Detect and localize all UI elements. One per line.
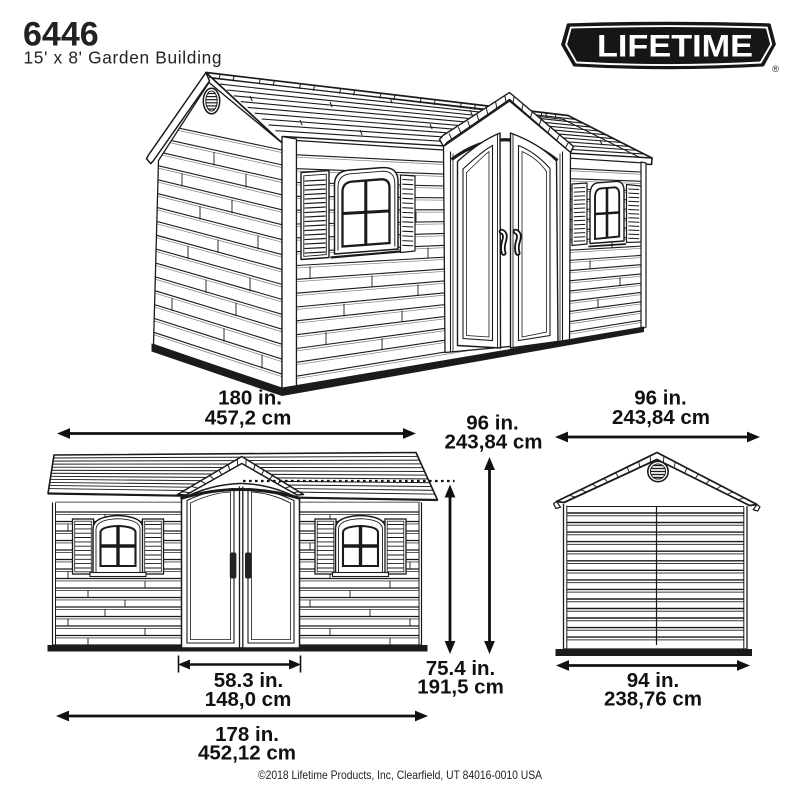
svg-text:243,84 cm: 243,84 cm — [612, 406, 710, 429]
svg-text:191,5 cm: 191,5 cm — [417, 676, 504, 699]
svg-text:©2018 Lifetime Products, Inc,: ©2018 Lifetime Products, Inc, Clearfield… — [258, 769, 542, 782]
svg-text:238,76 cm: 238,76 cm — [604, 688, 702, 711]
svg-text:15' x 8' Garden Building: 15' x 8' Garden Building — [24, 48, 222, 68]
svg-text:452,12 cm: 452,12 cm — [198, 742, 296, 765]
svg-text:457,2 cm: 457,2 cm — [205, 407, 292, 430]
svg-text:®: ® — [772, 64, 779, 75]
svg-text:243,84 cm: 243,84 cm — [444, 431, 542, 454]
svg-text:LIFETIME: LIFETIME — [597, 27, 753, 63]
svg-text:148,0 cm: 148,0 cm — [205, 688, 292, 711]
